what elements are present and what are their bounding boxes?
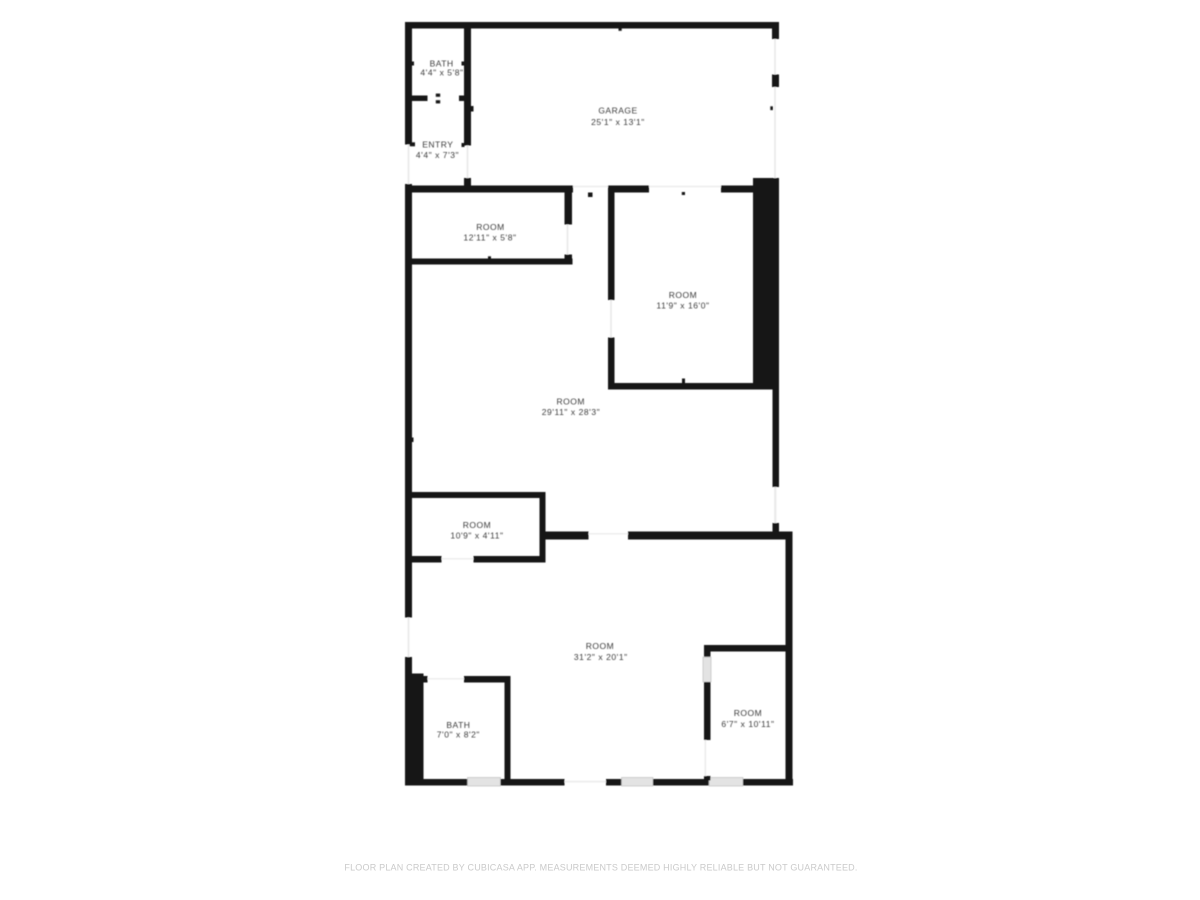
- svg-text:31'2" x 20'1": 31'2" x 20'1": [574, 652, 628, 662]
- svg-text:ROOM: ROOM: [586, 641, 614, 651]
- svg-text:6'7" x 10'11": 6'7" x 10'11": [721, 719, 774, 729]
- svg-text:ENTRY: ENTRY: [422, 140, 453, 150]
- svg-text:7'0" x 8'2": 7'0" x 8'2": [437, 730, 480, 740]
- svg-text:4'4" x 7'3": 4'4" x 7'3": [416, 150, 459, 160]
- svg-text:ROOM: ROOM: [734, 708, 762, 718]
- svg-text:GARAGE: GARAGE: [598, 106, 637, 116]
- svg-text:11'9" x 16'0": 11'9" x 16'0": [656, 300, 709, 310]
- svg-text:12'11" x 5'8": 12'11" x 5'8": [463, 232, 516, 242]
- svg-text:10'9" x 4'11": 10'9" x 4'11": [450, 531, 503, 541]
- svg-text:25'1" x 13'1": 25'1" x 13'1": [591, 117, 645, 127]
- svg-text:ROOM: ROOM: [669, 290, 697, 300]
- svg-text:FLOOR PLAN CREATED BY CUBICASA: FLOOR PLAN CREATED BY CUBICASA APP. MEAS…: [344, 863, 857, 873]
- svg-text:29'11" x 28'3": 29'11" x 28'3": [542, 407, 600, 417]
- svg-text:4'4" x 5'8": 4'4" x 5'8": [420, 68, 463, 78]
- svg-text:ROOM: ROOM: [476, 222, 504, 232]
- svg-text:ROOM: ROOM: [463, 520, 491, 530]
- svg-text:BATH: BATH: [446, 720, 470, 730]
- svg-text:ROOM: ROOM: [556, 397, 584, 407]
